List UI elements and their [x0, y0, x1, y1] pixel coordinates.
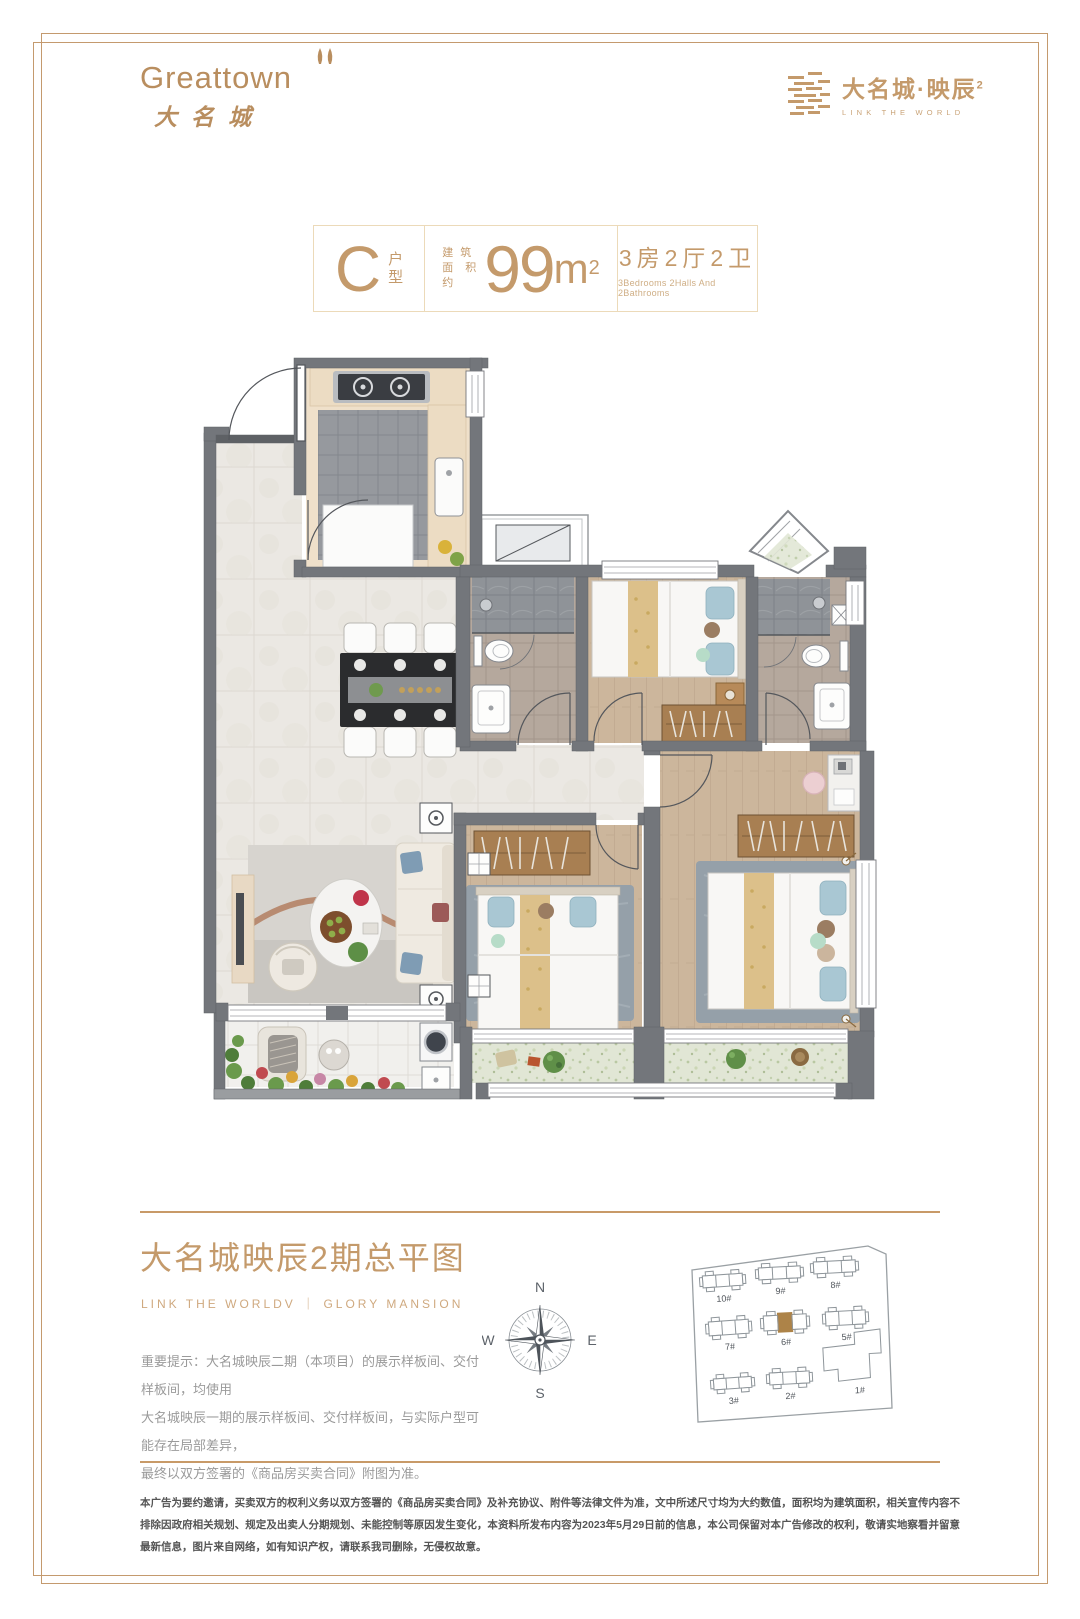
- svg-text:2#: 2#: [785, 1391, 796, 1402]
- unit-card: C 户型 建 筑面积约 99 m 2 3房2厅2卫 3Bedrooms 2Hal…: [313, 225, 758, 312]
- unit-label: 户型: [388, 251, 403, 287]
- svg-text:8#: 8#: [830, 1280, 841, 1291]
- area-prefix: 建 筑面积约: [442, 246, 478, 291]
- plant: [543, 1051, 565, 1073]
- svg-text:1#: 1#: [855, 1385, 866, 1396]
- unit-card-layout: 3房2厅2卫 3Bedrooms 2Halls And 2Bathrooms: [618, 226, 757, 311]
- fruit-basket: [438, 540, 452, 554]
- logo-greattown-latin: Greattown: [140, 60, 400, 96]
- ac-platform: [476, 515, 588, 573]
- compass-icon: N E S W: [482, 1278, 598, 1400]
- svg-text:7#: 7#: [725, 1341, 736, 1352]
- layout-cn: 3房2厅2卫: [619, 239, 756, 273]
- important-notice: 重要提示：大名城映辰二期（本项目）的展示样板间、交付样板间，均使用 大名城映辰一…: [141, 1348, 481, 1488]
- unit-card-type: C 户型: [314, 226, 425, 311]
- bay-window: [750, 511, 828, 573]
- divider-top: [140, 1211, 940, 1213]
- logo-greattown: Greattown 大名城: [140, 60, 400, 132]
- logo-yingchen-name: 大名城·映辰2: [842, 70, 985, 104]
- legal-disclaimer: 本广告为要约邀请，买卖双方的权利义务以双方签署的《商品房买卖合同》及补充协议、附…: [140, 1492, 960, 1558]
- entry-door-leaf: [297, 365, 305, 441]
- notice-line: 最终以双方签署的《商品房买卖合同》附图为准。: [141, 1460, 481, 1488]
- area-value: 99: [484, 239, 553, 299]
- notice-line: 大名城映辰一期的展示样板间、交付样板间，与实际户型可能存在局部差异，: [141, 1404, 481, 1460]
- site-section-subtitle: LINK THE WORLDV ｜ GLORY MANSION: [141, 1295, 463, 1312]
- brand-bars-icon: [788, 72, 832, 118]
- svg-text:5#: 5#: [841, 1332, 852, 1343]
- sliding-door-frame: [326, 1006, 348, 1020]
- svg-text:10#: 10#: [716, 1293, 732, 1304]
- unit-card-area: 建 筑面积约 99 m 2: [425, 226, 618, 311]
- side-table: [319, 1040, 349, 1070]
- page: Greattown 大名城 大名城·映辰2 LINK THE WORLD: [0, 0, 1080, 1619]
- svg-text:E: E: [587, 1332, 596, 1348]
- area-sup: 2: [589, 257, 600, 280]
- kitchen-island: [323, 505, 413, 567]
- shower-head: [813, 597, 825, 609]
- floor-plan: [198, 355, 878, 1100]
- svg-text:6#: 6#: [781, 1337, 792, 1348]
- svg-text:N: N: [535, 1279, 545, 1295]
- svg-text:W: W: [482, 1332, 495, 1348]
- divider-bottom: [140, 1461, 940, 1463]
- plant: [726, 1049, 746, 1069]
- site-map-svg: 10#9#8#7#6#5#3#2#1#: [672, 1232, 922, 1432]
- area-unit: m: [554, 245, 589, 293]
- logo-greattown-cjk: 大名城: [154, 98, 400, 132]
- desk-chair: [803, 772, 825, 794]
- dining-set: [340, 623, 460, 757]
- svg-text:9#: 9#: [775, 1286, 786, 1297]
- kitchen-sink: [435, 458, 463, 516]
- notice-line: 重要提示：大名城映辰二期（本项目）的展示样板间、交付样板间，均使用: [141, 1348, 481, 1404]
- logo-yingchen-sup: 2: [977, 79, 985, 91]
- shower-head: [480, 599, 492, 611]
- logo-yingchen: 大名城·映辰2 LINK THE WORLD: [788, 70, 1008, 118]
- svg-text:3#: 3#: [728, 1395, 739, 1406]
- site-section-title: 大名城映辰2期总平图: [140, 1233, 466, 1279]
- logo-yingchen-tagline: LINK THE WORLD: [842, 108, 985, 117]
- unit-letter: C: [335, 237, 381, 301]
- logo-yingchen-text: 大名城·映辰2 LINK THE WORLD: [842, 70, 985, 117]
- leaf-icon: [312, 48, 338, 64]
- tv: [236, 893, 244, 965]
- svg-text:S: S: [535, 1385, 544, 1400]
- layout-en: 3Bedrooms 2Halls And 2Bathrooms: [618, 278, 757, 298]
- entry-door-arc: [229, 368, 301, 440]
